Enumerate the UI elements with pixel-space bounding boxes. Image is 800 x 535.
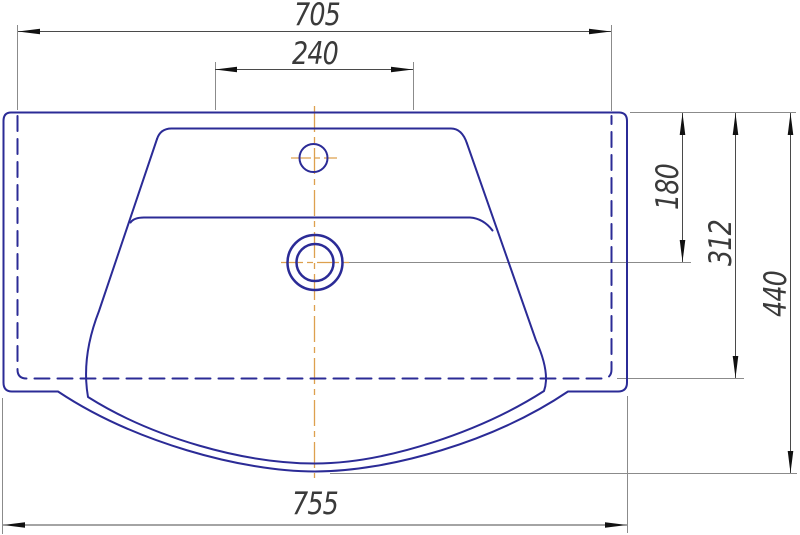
basin-inner-top-edge — [157, 129, 467, 144]
dimension-lines — [3, 32, 791, 526]
basin-bowl-outline — [86, 139, 546, 464]
arrow-312-bottom — [733, 356, 739, 378]
label-body-depth: 312 — [703, 220, 739, 266]
centerlines — [281, 106, 349, 478]
arrow-755-right — [605, 522, 627, 528]
basin-ledge-line — [131, 218, 493, 231]
arrow-755-left — [3, 522, 25, 528]
washbasin-outline — [4, 113, 628, 472]
arrow-240-right — [391, 67, 413, 73]
arrow-705-right — [589, 29, 611, 35]
label-faucet-zone-width: 240 — [292, 36, 338, 72]
washbasin-technical-drawing: 705 240 180 312 440 755 — [0, 0, 800, 535]
basin-body-outline — [4, 113, 628, 472]
arrow-440-bottom — [788, 451, 794, 473]
arrow-312-top — [733, 113, 739, 135]
label-overall-depth: 440 — [758, 271, 794, 317]
arrow-240-left — [215, 67, 237, 73]
arrow-705-left — [18, 29, 40, 35]
drawing-canvas: 705 240 180 312 440 755 — [0, 0, 800, 535]
label-drain-center-depth: 180 — [650, 164, 686, 210]
extension-lines — [3, 25, 798, 534]
label-body-width: 705 — [294, 0, 340, 33]
arrow-180-bottom — [680, 240, 686, 262]
arrow-440-top — [788, 113, 794, 135]
dimension-labels: 705 240 180 312 440 755 — [292, 0, 794, 522]
arrow-180-top — [680, 113, 686, 135]
label-overall-width: 755 — [292, 486, 338, 522]
